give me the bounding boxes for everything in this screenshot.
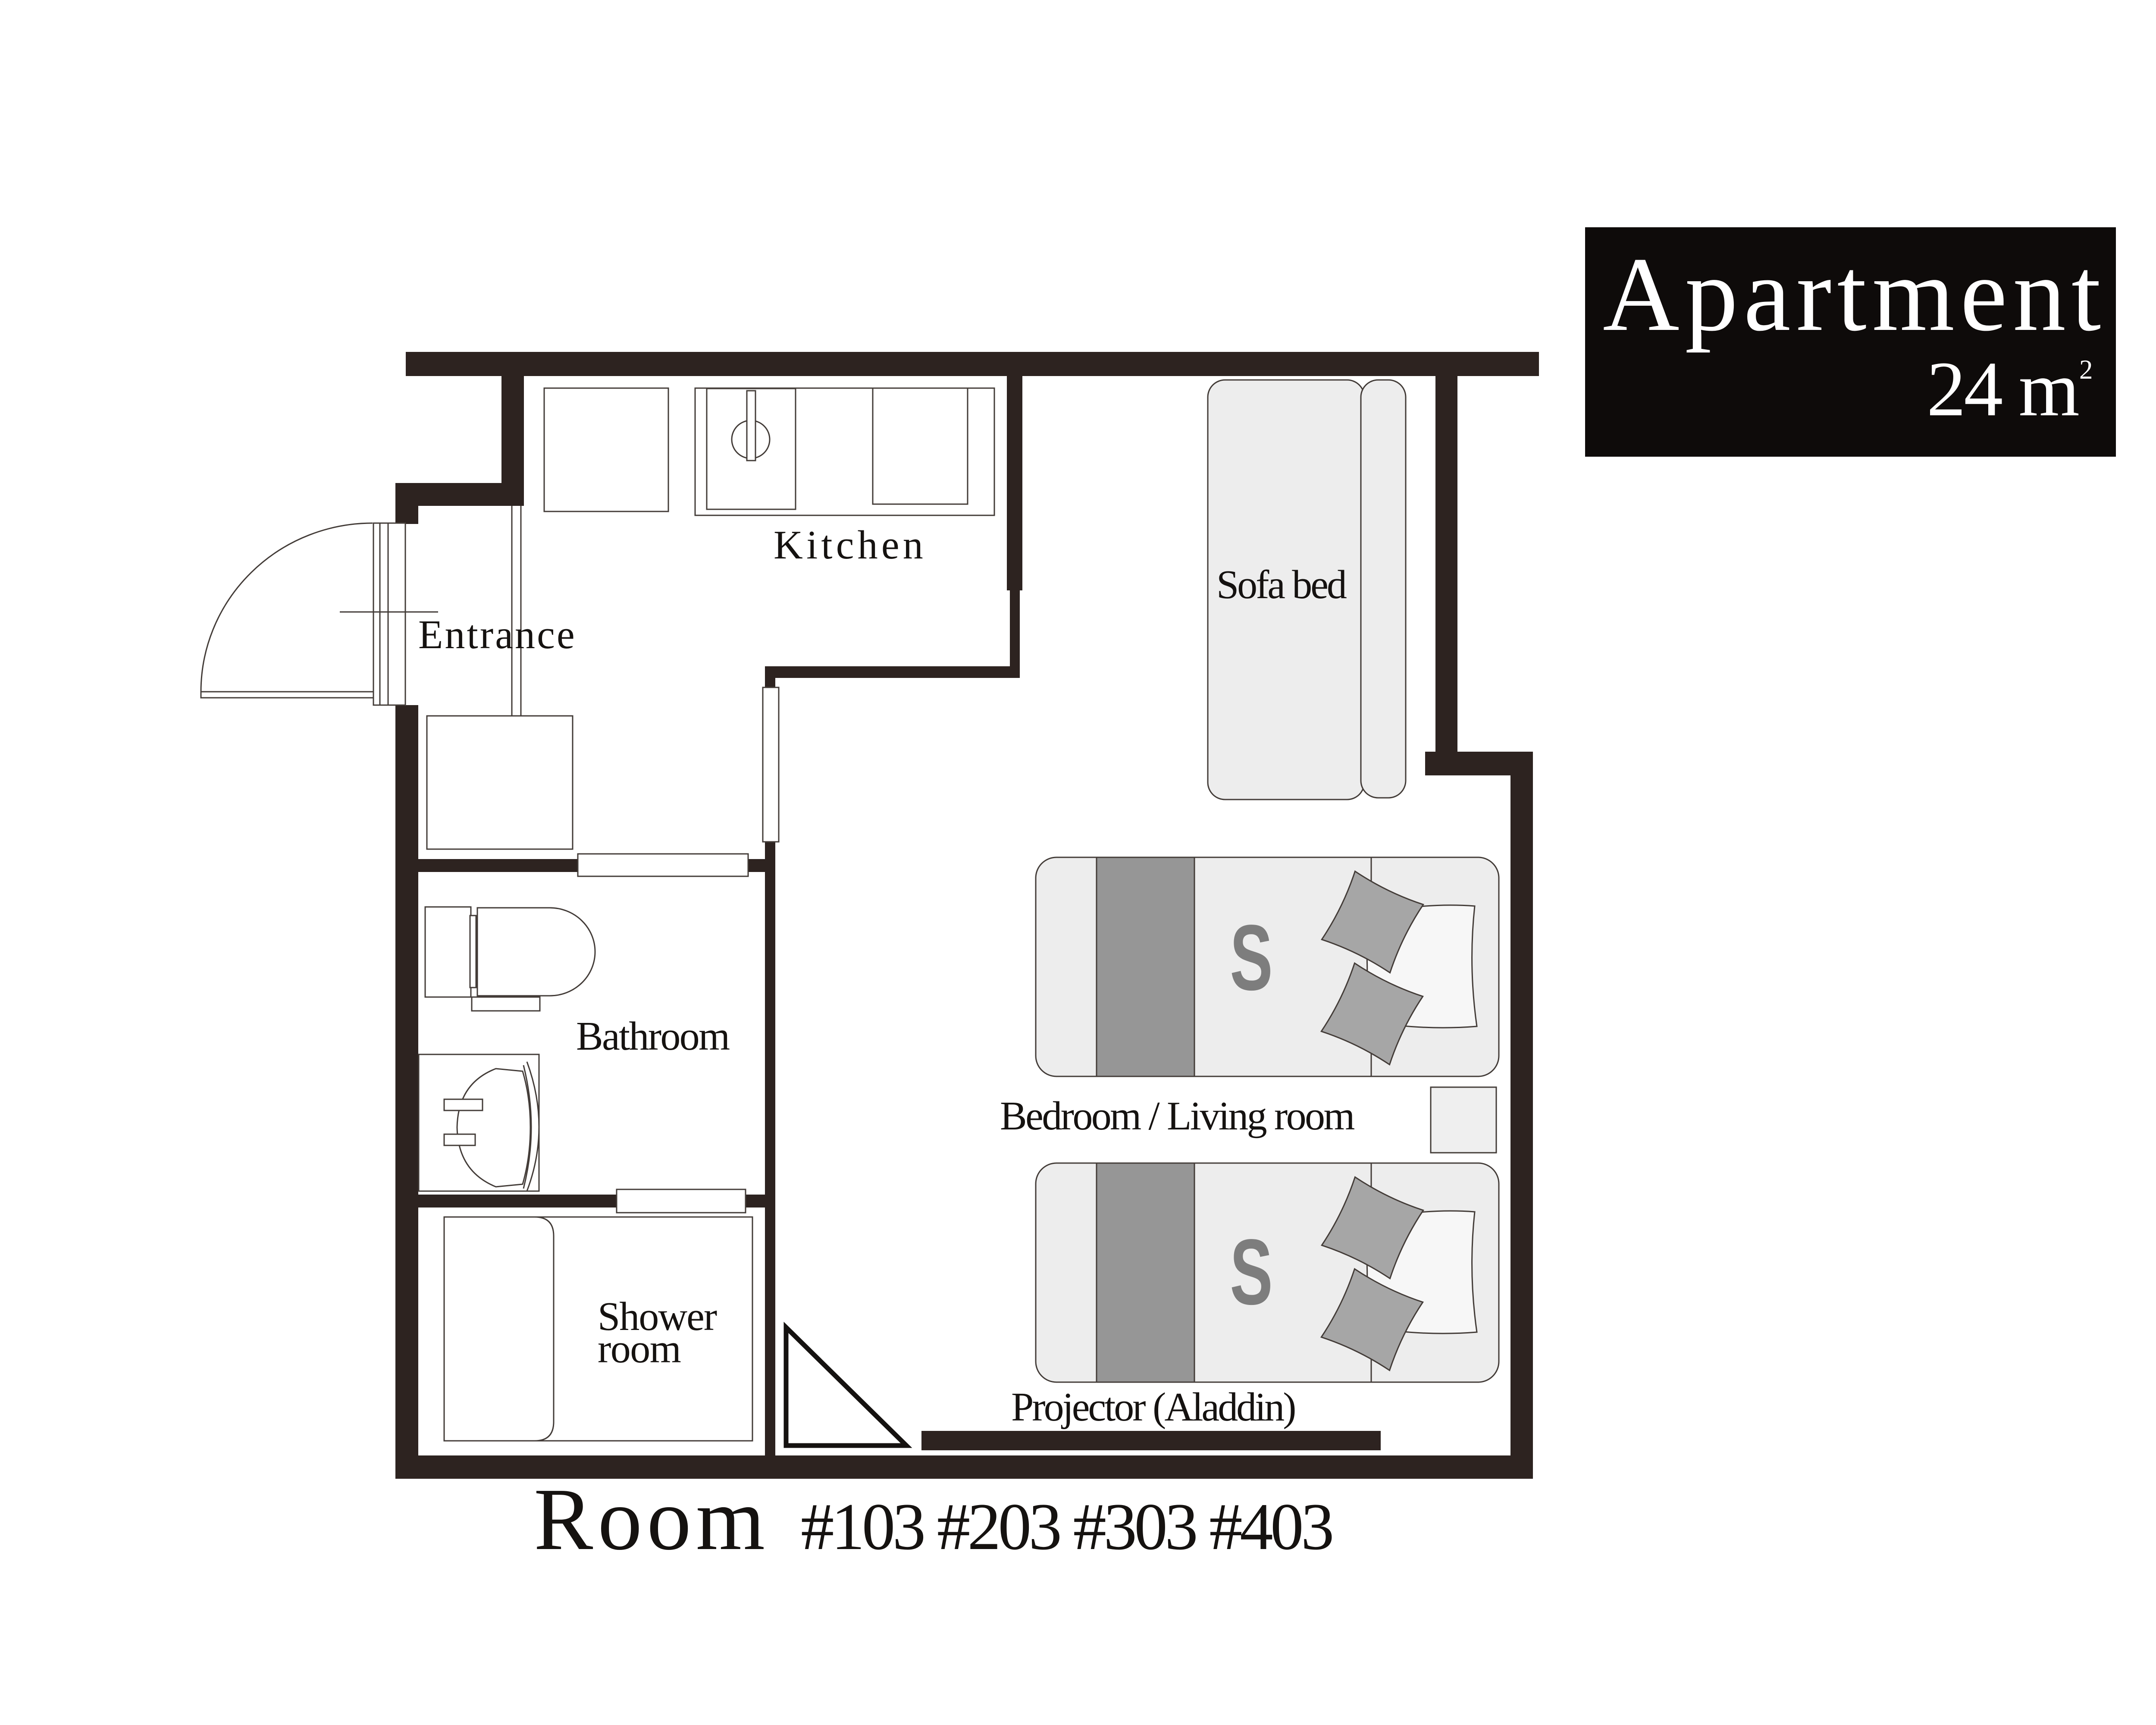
svg-text:room: room	[598, 1327, 681, 1371]
svg-text:Bathroom: Bathroom	[576, 1014, 730, 1059]
svg-text:S: S	[1230, 1220, 1272, 1324]
svg-text:24 m: 24 m	[1927, 346, 2078, 433]
svg-text:Entrance: Entrance	[418, 612, 577, 657]
svg-text:Bedroom / Living room: Bedroom / Living room	[1000, 1094, 1354, 1138]
svg-text:S: S	[1230, 906, 1272, 1010]
svg-text:Apartment: Apartment	[1603, 236, 2106, 353]
svg-text:Projector (Aladdin): Projector (Aladdin)	[1011, 1385, 1295, 1430]
svg-text:Sofa bed: Sofa bed	[1216, 562, 1347, 607]
svg-text:Kitchen: Kitchen	[774, 523, 927, 568]
svg-text:#103 #203 #303 #403: #103 #203 #303 #403	[801, 1490, 1332, 1564]
svg-text:Room: Room	[534, 1470, 770, 1568]
svg-text:2: 2	[2079, 354, 2093, 385]
